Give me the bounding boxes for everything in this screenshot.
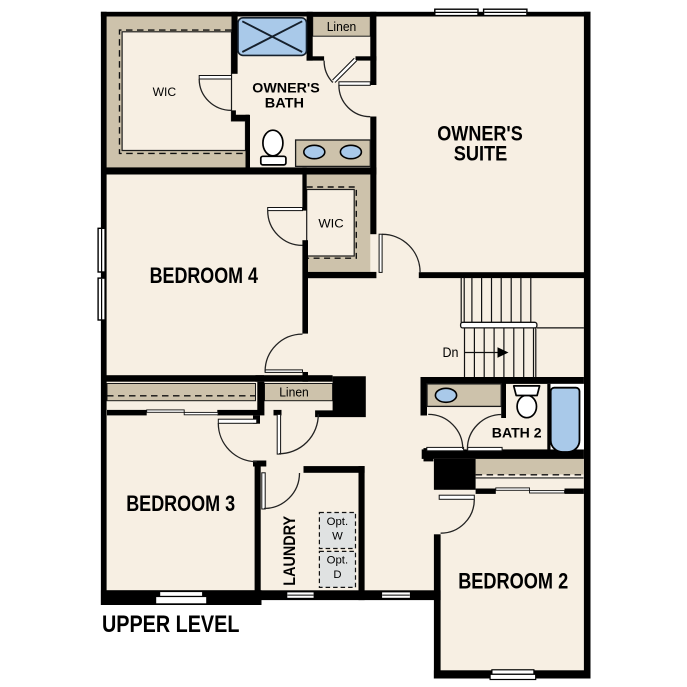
svg-text:BEDROOM 2: BEDROOM 2 <box>458 569 568 594</box>
svg-text:SUITE: SUITE <box>454 143 508 166</box>
svg-text:OWNER'S: OWNER'S <box>252 81 320 96</box>
svg-text:UPPER LEVEL: UPPER LEVEL <box>102 611 240 638</box>
svg-text:Linen: Linen <box>279 384 309 399</box>
svg-text:BEDROOM 4: BEDROOM 4 <box>150 263 259 288</box>
svg-text:BEDROOM 3: BEDROOM 3 <box>126 491 235 516</box>
svg-text:D: D <box>333 569 341 581</box>
svg-text:Linen: Linen <box>327 19 357 34</box>
svg-text:Opt.: Opt. <box>327 516 349 528</box>
svg-text:BATH 2: BATH 2 <box>492 426 542 441</box>
svg-text:Opt.: Opt. <box>327 555 349 567</box>
svg-text:BATH: BATH <box>265 96 304 111</box>
svg-text:WIC: WIC <box>318 216 343 230</box>
svg-text:W: W <box>332 531 343 543</box>
svg-text:WIC: WIC <box>153 85 177 99</box>
svg-text:LAUNDRY: LAUNDRY <box>280 515 299 585</box>
svg-text:Dn: Dn <box>443 344 459 360</box>
